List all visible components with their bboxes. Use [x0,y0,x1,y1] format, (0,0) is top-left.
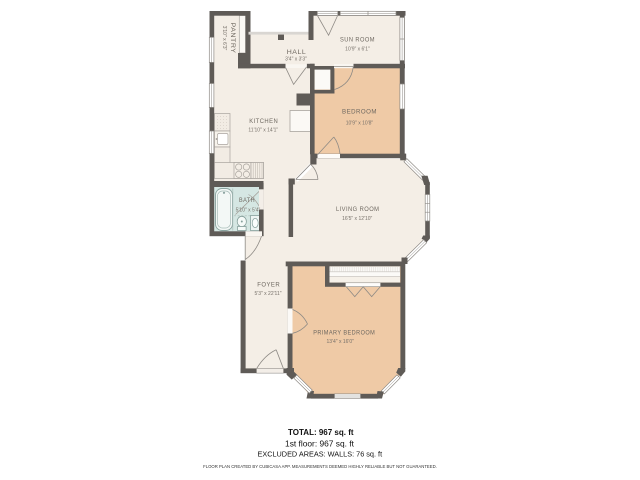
svg-text:SUN ROOM: SUN ROOM [340,36,375,43]
svg-text:5'3" x 22'11": 5'3" x 22'11" [254,291,281,297]
svg-text:FOYER: FOYER [257,281,280,288]
svg-text:TOTAL: 967 sq. ft: TOTAL: 967 sq. ft [288,428,354,437]
svg-text:11'10" x 14'1": 11'10" x 14'1" [248,128,278,134]
svg-text:HALL: HALL [287,49,307,56]
svg-text:1st floor: 967 sq. ft: 1st floor: 967 sq. ft [285,439,355,449]
svg-text:LIVING ROOM: LIVING ROOM [336,206,380,213]
svg-text:13'4" x 16'0": 13'4" x 16'0" [326,339,354,345]
svg-text:EXCLUDED AREAS: WALLS: 76 sq.: EXCLUDED AREAS: WALLS: 76 sq. ft [257,450,382,459]
svg-text:5'10" x 5'4": 5'10" x 5'4" [236,207,261,213]
svg-text:FLOOR PLAN CREATED BY CUBICASA: FLOOR PLAN CREATED BY CUBICASA APP. MEAS… [203,464,437,469]
svg-text:BATH: BATH [239,197,255,204]
svg-text:BEDROOM: BEDROOM [342,108,377,115]
svg-text:16'5" x 12'10": 16'5" x 12'10" [342,216,372,222]
svg-text:10'9" x 6'1": 10'9" x 6'1" [345,46,370,52]
svg-text:10'9" x 10'8": 10'9" x 10'8" [346,120,374,126]
svg-text:KITCHEN: KITCHEN [249,118,278,125]
svg-text:PANTRY: PANTRY [229,22,236,53]
svg-text:3'10" x 6'3": 3'10" x 6'3" [221,26,227,51]
svg-text:3'4" x 3'3": 3'4" x 3'3" [285,56,307,62]
svg-text:PRIMARY BEDROOM: PRIMARY BEDROOM [313,329,375,336]
